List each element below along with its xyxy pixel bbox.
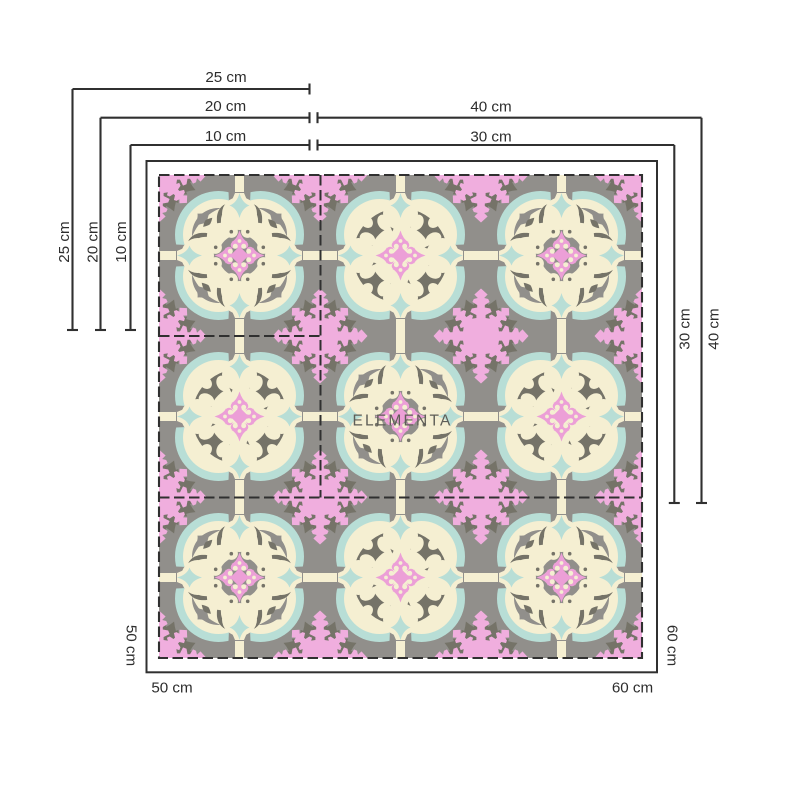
svg-text:40 cm: 40 cm [706, 308, 723, 349]
svg-text:60 cm: 60 cm [612, 680, 653, 697]
svg-text:ELEMENTA: ELEMENTA [353, 413, 453, 430]
svg-text:25 cm: 25 cm [205, 69, 246, 86]
svg-text:25 cm: 25 cm [56, 221, 73, 262]
svg-text:40 cm: 40 cm [470, 99, 511, 116]
svg-text:10 cm: 10 cm [113, 221, 130, 262]
svg-text:60 cm: 60 cm [664, 625, 681, 666]
svg-text:50 cm: 50 cm [151, 680, 192, 697]
svg-text:20 cm: 20 cm [85, 221, 102, 262]
svg-text:10 cm: 10 cm [205, 128, 246, 145]
svg-text:30 cm: 30 cm [470, 129, 511, 146]
svg-text:50 cm: 50 cm [123, 625, 140, 666]
svg-text:20 cm: 20 cm [205, 98, 246, 115]
svg-text:30 cm: 30 cm [677, 308, 694, 349]
